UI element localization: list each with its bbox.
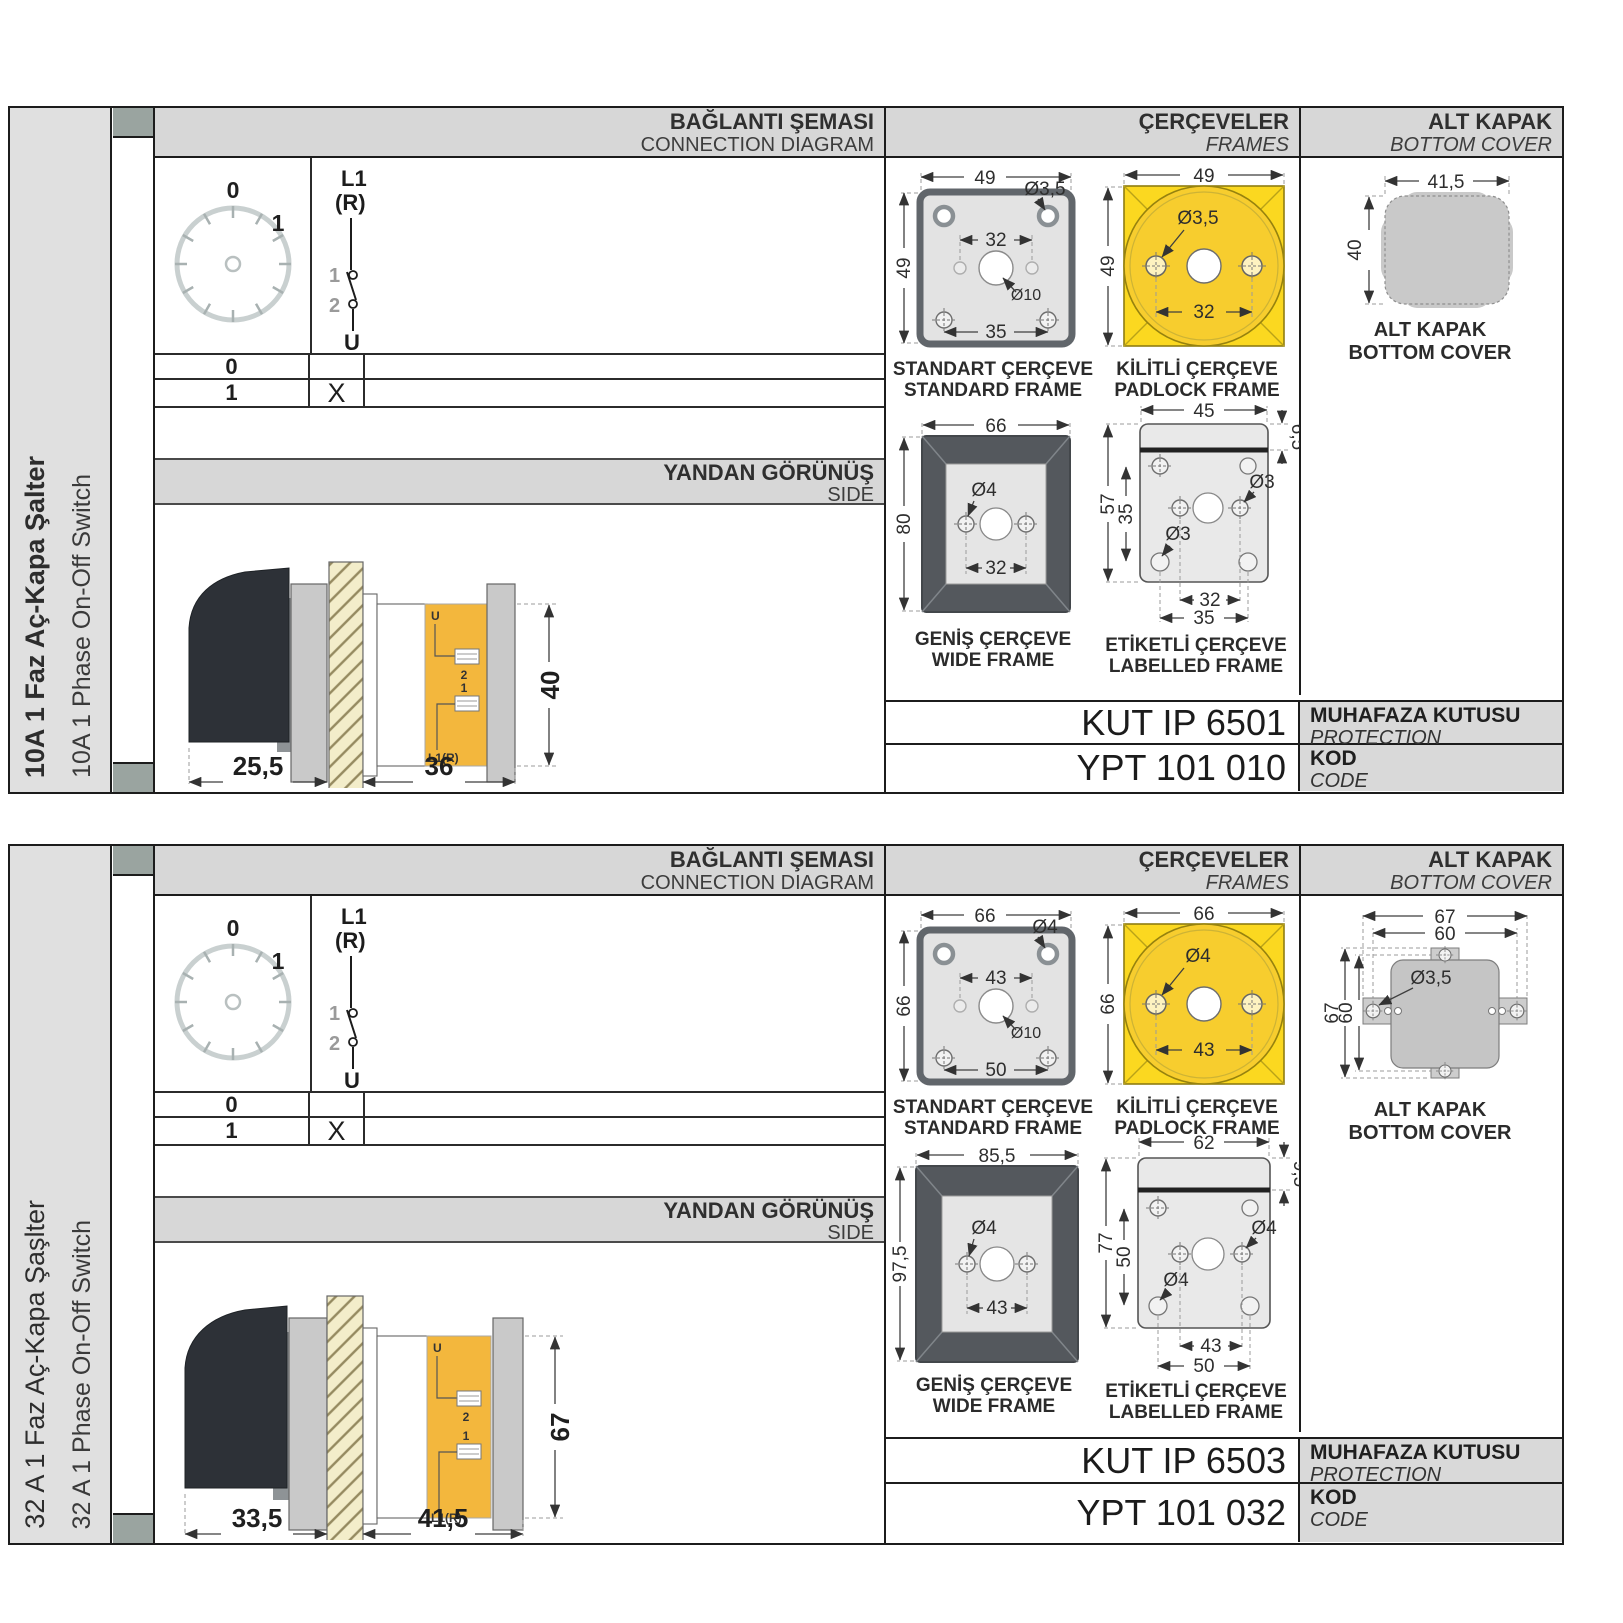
dim-corner-hole: Ø3,5 <box>1024 179 1065 200</box>
dim-hole-spacing: 32 <box>985 558 1006 579</box>
dim-hole-spacing: 43 <box>1193 1040 1214 1061</box>
dim-hole-lower: Ø4 <box>1163 1270 1189 1291</box>
dim-width: 49 <box>974 168 995 189</box>
frame-label-tr: KİLİTLİ ÇERÇEVE <box>1094 1097 1300 1118</box>
switch-symbol-drawing: L1 (R) U 1 2 <box>313 896 533 1091</box>
frame-label: GENİŞ ÇERÇEVE WIDE FRAME <box>890 629 1096 671</box>
dim-hole-upper: Ø3 <box>1249 472 1274 493</box>
header-side-tr: YANDAN GÖRÜNÜŞ <box>155 1199 874 1222</box>
header-side-tr: YANDAN GÖRÜNÜŞ <box>155 461 874 484</box>
frame-label: GENİŞ ÇERÇEVE WIDE FRAME <box>888 1375 1100 1417</box>
header-connection-diagram: BAĞLANTI ŞEMASI CONNECTION DIAGRAM <box>155 846 886 896</box>
switch-symbol-cell: L1 (R) U 1 2 <box>313 158 533 353</box>
switch-contact-1: 1 <box>329 265 340 287</box>
enclosure-label: MUHAFAZA KUTUSU PROTECTION ENCLOSURE <box>1298 702 1562 743</box>
enclosure-label-tr: MUHAFAZA KUTUSU <box>1310 704 1562 727</box>
dim-hole: Ø4 <box>971 480 997 501</box>
rotary-dial-drawing: 0 1 <box>155 158 310 353</box>
state-pos: 0 <box>155 1093 310 1116</box>
header-frames: ÇERÇEVELER FRAMES <box>886 846 1301 896</box>
header-side-view: YANDAN GÖRÜNÜŞ SIDE <box>155 1196 884 1243</box>
state-mark: X <box>310 1118 365 1144</box>
product-title-en: 32 A 1 Phase On-Off Switch <box>68 1220 97 1529</box>
enclosure-row: KUT IP 6501 MUHAFAZA KUTUSU PROTECTION E… <box>886 702 1562 745</box>
dim-hole: Ø4 <box>1185 946 1211 967</box>
bottom-cover-block: 41,5 40 ALT KAPAK BOTTOM COVER <box>1307 164 1553 365</box>
dim-hole: Ø3,5 <box>1410 968 1451 989</box>
dim-width: 45 <box>1193 401 1214 422</box>
header-frames: ÇERÇEVELER FRAMES <box>886 108 1301 158</box>
dim-band: 9,5 <box>1289 1161 1300 1187</box>
standard-frame-drawing: 49 Ø3,5 49 32 Ø10 35 <box>890 162 1096 358</box>
code-label-en: CODE <box>1310 1509 1562 1531</box>
bottom-cover-drawing: 41,5 40 <box>1307 164 1553 314</box>
switch-handle <box>185 1306 287 1488</box>
wide-frame-block: 66 80 Ø4 32 GENİŞ ÇERÇEVE WIDE FRAME <box>890 410 1096 671</box>
product-section-32a: 32 A 1 Faz Aç-Kapa Şaşlter 32 A 1 Phase … <box>8 844 1564 1545</box>
frame-label-tr: ETİKETLİ ÇERÇEVE <box>1092 1381 1300 1402</box>
dim-bottom-2: 50 <box>1193 1356 1214 1377</box>
codes-block: KUT IP 6503 MUHAFAZA KUTUSU PROTECTION E… <box>886 1437 1562 1543</box>
header-cover-tr: ALT KAPAK <box>1301 110 1552 134</box>
dial-pos-0: 0 <box>227 915 240 941</box>
state-mark: X <box>310 380 365 406</box>
header-frames-tr: ÇERÇEVELER <box>886 110 1289 134</box>
wide-frame-drawing: 66 80 Ø4 32 <box>890 410 1096 628</box>
state-table-row-1: 1 X <box>155 1118 884 1146</box>
padlock-frame-block: 66 66 Ø4 43 KİLİTLİ ÇERÇEVE PADLOCK FRAM… <box>1094 898 1300 1139</box>
dim-width: 62 <box>1193 1133 1214 1154</box>
frame-label-tr: GENİŞ ÇERÇEVE <box>890 629 1096 650</box>
switch-symbol-cell: L1 (R) U 1 2 <box>313 896 533 1091</box>
mounting-panel-hatch <box>327 1296 363 1540</box>
dim-width: 85,5 <box>979 1146 1016 1167</box>
side-view-drawing: U 2 1 L1(R) 67 33,5 <box>161 1248 681 1540</box>
labelled-frame-block: 45 6,5 57 35 Ø3 Ø3 <box>1092 396 1300 677</box>
dim-height: 97,5 <box>890 1246 911 1283</box>
bottom-cover-drawing: 67 60 67 60 <box>1307 902 1557 1094</box>
dim-body-depth: 41,5 <box>418 1503 469 1533</box>
switch-symbol-drawing: L1 (R) U 1 2 <box>313 158 533 353</box>
dim-lower-spacing: 35 <box>985 322 1006 343</box>
frame-label-tr: STANDART ÇERÇEVE <box>890 359 1096 380</box>
header-connection-tr: BAĞLANTI ŞEMASI <box>155 848 874 872</box>
dial-pos-0: 0 <box>227 177 240 203</box>
product-title-tr: 10A 1 Faz Aç-Kapa Şalter <box>20 456 51 778</box>
tab-square-bottom <box>113 762 153 792</box>
header-connection-en: CONNECTION DIAGRAM <box>155 872 874 894</box>
dim-hole: Ø4 <box>971 1218 997 1239</box>
dim-center-hole: Ø10 <box>1011 1025 1041 1042</box>
dim-height: 40 <box>1345 239 1366 260</box>
dim-center-hole: Ø10 <box>1011 287 1041 304</box>
dim-bottom-1: 43 <box>1200 1336 1221 1357</box>
state-mark <box>310 355 365 378</box>
dial-pos-1: 1 <box>272 210 285 236</box>
frame-label: ETİKETLİ ÇERÇEVE LABELLED FRAME <box>1092 1381 1300 1423</box>
switch-contact-2: 2 <box>329 295 340 317</box>
frames-area: 49 Ø3,5 49 32 Ø10 35 <box>886 158 1301 695</box>
dim-width: 66 <box>1193 904 1214 925</box>
header-cover-en: BOTTOM COVER <box>1301 872 1552 894</box>
terminal-1: 1 <box>463 1429 470 1443</box>
header-side-view: YANDAN GÖRÜNÜŞ SIDE <box>155 458 884 505</box>
terminal-u: U <box>433 1341 442 1355</box>
cover-label-tr: ALT KAPAK <box>1307 319 1553 342</box>
enclosure-label: MUHAFAZA KUTUSU PROTECTION ENCLOSURE <box>1298 1439 1562 1482</box>
standard-frame-block: 66 Ø4 66 43 Ø10 50 <box>890 900 1096 1139</box>
frames-area: 66 Ø4 66 43 Ø10 50 <box>886 896 1301 1432</box>
labelled-frame-block: 62 9,5 77 50 Ø4 Ø4 <box>1092 1128 1300 1423</box>
state-pos: 1 <box>155 1118 310 1144</box>
product-title-en: 10A 1 Phase On-Off Switch <box>68 474 97 778</box>
frame-label: STANDART ÇERÇEVE STANDARD FRAME <box>890 1097 1096 1139</box>
frame-label: KİLİTLİ ÇERÇEVE PADLOCK FRAME <box>1094 359 1300 401</box>
section-sidebar: 10A 1 Faz Aç-Kapa Şalter 10A 1 Phase On-… <box>10 108 112 792</box>
frame-label-en: LABELLED FRAME <box>1092 1402 1300 1423</box>
header-cover-tr: ALT KAPAK <box>1301 848 1552 872</box>
enclosure-code: KUT IP 6501 <box>886 702 1298 743</box>
tab-square-top <box>113 846 153 876</box>
labelled-frame-drawing: 62 9,5 77 50 Ø4 Ø4 <box>1092 1128 1300 1380</box>
connection-diagram-area: 0 1 L1 (R) U 1 2 <box>155 158 886 792</box>
cover-label-tr: ALT KAPAK <box>1307 1099 1553 1122</box>
frame-label-tr: GENİŞ ÇERÇEVE <box>888 1375 1100 1396</box>
frame-label-en: WIDE FRAME <box>890 650 1096 671</box>
terminal-block <box>425 604 487 766</box>
header-bottom-cover: ALT KAPAK BOTTOM COVER <box>1301 108 1562 158</box>
tab-column <box>113 846 155 1543</box>
header-cover-en: BOTTOM COVER <box>1301 134 1552 156</box>
dim-height: 49 <box>1098 255 1119 276</box>
dim-hole-spacing: 32 <box>985 230 1006 251</box>
state-table-row-0: 0 <box>155 353 884 380</box>
enclosure-label-tr: MUHAFAZA KUTUSU <box>1310 1441 1562 1464</box>
code-label-en: CODE <box>1310 770 1562 792</box>
dim-hole-spacing: 43 <box>985 968 1006 989</box>
header-connection-en: CONNECTION DIAGRAM <box>155 134 874 156</box>
catalog-page: 10A 1 Faz Aç-Kapa Şalter 10A 1 Phase On-… <box>0 0 1623 1623</box>
dim-hole-lower: Ø3 <box>1165 524 1190 545</box>
dim-height: 66 <box>894 995 915 1016</box>
dim-width: 66 <box>974 906 995 927</box>
product-code: YPT 101 032 <box>886 1484 1298 1542</box>
wide-frame-drawing: 85,5 97,5 Ø4 43 <box>888 1142 1100 1374</box>
header-side-en: SIDE <box>155 1222 874 1244</box>
dim-hole-spacing: 43 <box>986 1298 1007 1319</box>
dim-body-depth: 36 <box>425 751 454 781</box>
padlock-frame-block: 49 49 Ø3,5 32 KİLİTLİ ÇERÇEVE PADLOCK FR… <box>1094 160 1300 401</box>
code-label-tr: KOD <box>1310 747 1562 770</box>
frame-label: STANDART ÇERÇEVE STANDARD FRAME <box>890 359 1096 401</box>
bottom-cover-area: 67 60 67 60 <box>1301 896 1562 1432</box>
product-code: YPT 101 010 <box>886 745 1298 791</box>
switch-handle <box>189 568 289 742</box>
state-mark <box>310 1093 365 1116</box>
dim-inner-height: 35 <box>1116 503 1137 524</box>
frame-label: ETİKETLİ ÇERÇEVE LABELLED FRAME <box>1092 635 1300 677</box>
dim-hole: Ø3,5 <box>1177 208 1218 229</box>
code-row: YPT 101 010 KOD CODE <box>886 745 1562 791</box>
header-bottom-cover: ALT KAPAK BOTTOM COVER <box>1301 846 1562 896</box>
dim-handle-depth: 33,5 <box>232 1503 283 1533</box>
code-label-tr: KOD <box>1310 1486 1562 1509</box>
enclosure-row: KUT IP 6503 MUHAFAZA KUTUSU PROTECTION E… <box>886 1439 1562 1484</box>
dim-bottom-2: 35 <box>1193 608 1214 629</box>
bottom-cover-area: 41,5 40 ALT KAPAK BOTTOM COVER <box>1301 158 1562 695</box>
state-table-row-1: 1 X <box>155 380 884 408</box>
cover-label-en: BOTTOM COVER <box>1307 342 1553 365</box>
dim-lower-spacing: 50 <box>985 1060 1006 1081</box>
switch-label-r: (R) <box>335 190 366 215</box>
tab-square-top <box>113 108 153 138</box>
tab-column <box>113 108 155 792</box>
state-pos: 1 <box>155 380 310 406</box>
dim-inner-width: 60 <box>1434 924 1455 945</box>
cover-label-en: BOTTOM COVER <box>1307 1122 1553 1145</box>
padlock-frame-drawing: 49 49 Ø3,5 32 <box>1094 160 1300 358</box>
dim-height: 49 <box>894 257 915 278</box>
padlock-frame-drawing: 66 66 Ø4 43 <box>1094 898 1300 1096</box>
switch-label-r: (R) <box>335 928 366 953</box>
header-side-en: SIDE <box>155 484 874 506</box>
labelled-frame-drawing: 45 6,5 57 35 Ø3 Ø3 <box>1092 396 1300 634</box>
section-content: BAĞLANTI ŞEMASI CONNECTION DIAGRAM ÇERÇE… <box>155 108 1562 792</box>
switch-label-l1: L1 <box>341 166 367 191</box>
dim-width: 49 <box>1193 166 1214 187</box>
side-view-drawing: U 2 1 L1(R) 40 25,5 <box>161 510 661 788</box>
codes-block: KUT IP 6501 MUHAFAZA KUTUSU PROTECTION E… <box>886 700 1562 792</box>
header-frames-en: FRAMES <box>886 872 1289 894</box>
frame-label-tr: ETİKETLİ ÇERÇEVE <box>1092 635 1300 656</box>
rotary-dial-drawing: 0 1 <box>155 896 310 1091</box>
wide-frame-block: 85,5 97,5 Ø4 43 GENİŞ ÇERÇEVE WIDE FRAME <box>888 1142 1100 1417</box>
header-frames-en: FRAMES <box>886 134 1289 156</box>
state-pos: 0 <box>155 355 310 378</box>
switch-label-u: U <box>344 1068 360 1091</box>
state-table-row-0: 0 <box>155 1091 884 1118</box>
cover-label: ALT KAPAK BOTTOM COVER <box>1307 1099 1553 1145</box>
code-label: KOD CODE <box>1298 1484 1562 1542</box>
switch-contact-1: 1 <box>329 1003 340 1025</box>
connection-diagram-area: 0 1 L1 (R) U 1 2 <box>155 896 886 1543</box>
dim-height: 66 <box>1098 993 1119 1014</box>
switch-contact-2: 2 <box>329 1033 340 1055</box>
frame-label-en: LABELLED FRAME <box>1092 656 1300 677</box>
terminal-2: 2 <box>463 1410 470 1424</box>
switch-label-l1: L1 <box>341 904 367 929</box>
section-content: BAĞLANTI ŞEMASI CONNECTION DIAGRAM ÇERÇE… <box>155 846 1562 1543</box>
dim-corner-hole: Ø4 <box>1032 917 1058 938</box>
frame-label-tr: STANDART ÇERÇEVE <box>890 1097 1096 1118</box>
code-row: YPT 101 032 KOD CODE <box>886 1484 1562 1542</box>
header-connection-tr: BAĞLANTI ŞEMASI <box>155 110 874 134</box>
switch-label-u: U <box>344 330 360 353</box>
dim-hole-spacing: 32 <box>1193 302 1214 323</box>
dim-height: 67 <box>545 1413 575 1442</box>
dial-cell: 0 1 <box>155 896 312 1091</box>
tab-square-bottom <box>113 1513 153 1543</box>
enclosure-code: KUT IP 6503 <box>886 1439 1298 1482</box>
standard-frame-block: 49 Ø3,5 49 32 Ø10 35 <box>890 162 1096 401</box>
frame-label-en: STANDARD FRAME <box>890 380 1096 401</box>
product-title-tr: 32 A 1 Faz Aç-Kapa Şaşlter <box>20 1200 51 1529</box>
section-sidebar: 32 A 1 Faz Aç-Kapa Şaşlter 32 A 1 Phase … <box>10 846 112 1543</box>
dim-inner-height: 50 <box>1114 1246 1135 1267</box>
code-label: KOD CODE <box>1298 745 1562 791</box>
mounting-panel-hatch <box>329 562 363 788</box>
cover-label: ALT KAPAK BOTTOM COVER <box>1307 319 1553 365</box>
terminal-2: 2 <box>461 668 468 682</box>
dial-pos-1: 1 <box>272 948 285 974</box>
dim-width: 66 <box>985 416 1006 437</box>
frame-label-tr: KİLİTLİ ÇERÇEVE <box>1094 359 1300 380</box>
dim-hole-upper: Ø4 <box>1251 1218 1277 1239</box>
bottom-cover-block: 67 60 67 60 <box>1307 902 1553 1145</box>
dim-band: 6,5 <box>1287 424 1300 450</box>
frame-label-en: STANDARD FRAME <box>890 1118 1096 1139</box>
dim-height: 80 <box>894 513 915 534</box>
header-connection-diagram: BAĞLANTI ŞEMASI CONNECTION DIAGRAM <box>155 108 886 158</box>
dial-cell: 0 1 <box>155 158 312 353</box>
dim-width: 41,5 <box>1428 172 1465 193</box>
terminal-u: U <box>431 609 440 623</box>
standard-frame-drawing: 66 Ø4 66 43 Ø10 50 <box>890 900 1096 1096</box>
product-section-10a: 10A 1 Faz Aç-Kapa Şalter 10A 1 Phase On-… <box>8 106 1564 794</box>
dim-inner-height: 60 <box>1336 1002 1357 1023</box>
dim-height: 40 <box>535 671 565 700</box>
terminal-1: 1 <box>461 681 468 695</box>
dim-handle-depth: 25,5 <box>233 751 284 781</box>
frame-label-en: WIDE FRAME <box>888 1396 1100 1417</box>
header-frames-tr: ÇERÇEVELER <box>886 848 1289 872</box>
